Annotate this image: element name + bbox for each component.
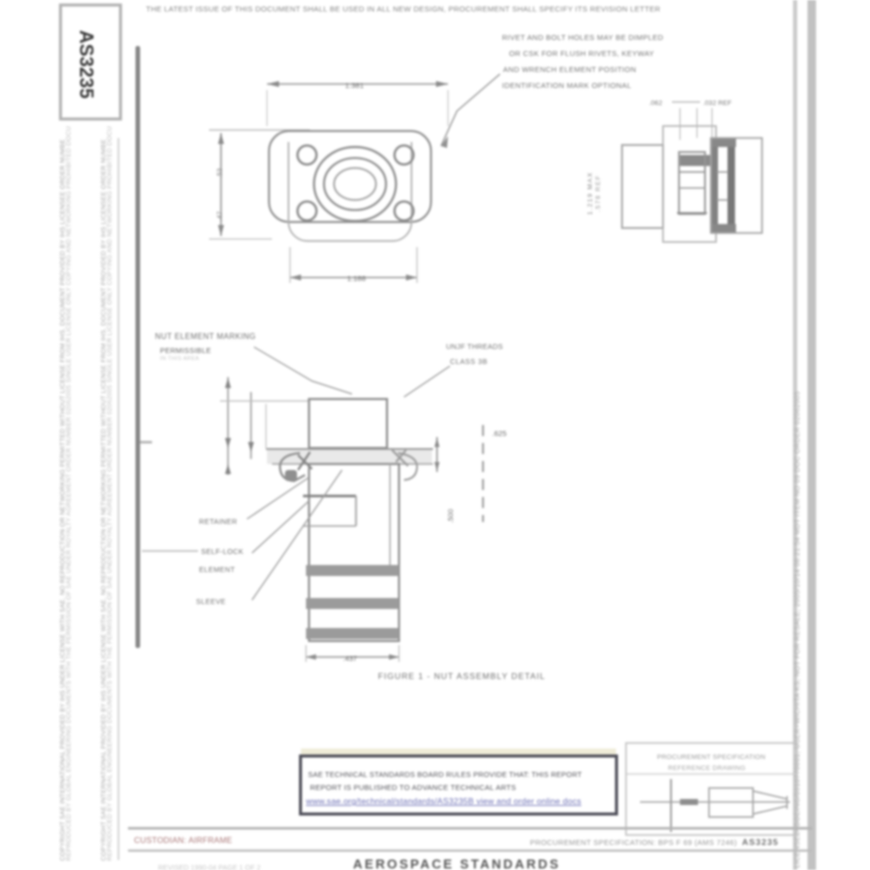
svg-text:UNJF THREADS: UNJF THREADS [446, 342, 503, 351]
svg-text:OR CSK FOR FLUSH RIVETS, KEYWA: OR CSK FOR FLUSH RIVETS, KEYWAY [509, 49, 654, 58]
svg-text:.625: .625 [492, 429, 507, 438]
svg-text:FIGURE 1 - NUT ASSEMBLY DETAIL: FIGURE 1 - NUT ASSEMBLY DETAIL [378, 671, 545, 681]
svg-text:RETAINER: RETAINER [199, 517, 237, 526]
svg-text:.032 REF: .032 REF [703, 100, 732, 107]
svg-text:CLASS 3B: CLASS 3B [450, 357, 488, 366]
svg-text:RIVET AND BOLT HOLES MAY BE DI: RIVET AND BOLT HOLES MAY BE DIMPLED [502, 33, 663, 42]
svg-text:.578 REF: .578 REF [595, 175, 602, 212]
svg-text:REVISED 1990-04 PAGE 1 OF 2: REVISED 1990-04 PAGE 1 OF 2 [158, 865, 261, 870]
svg-text:.062: .062 [649, 100, 662, 107]
svg-text:1.381: 1.381 [345, 81, 364, 90]
svg-text:1.219 MAX: 1.219 MAX [587, 172, 594, 215]
svg-text:AND WRENCH ELEMENT POSITION: AND WRENCH ELEMENT POSITION [503, 65, 636, 74]
svg-text:.53: .53 [217, 168, 224, 178]
svg-text:CUSTODIAN: AIRFRAME: CUSTODIAN: AIRFRAME [134, 836, 233, 845]
svg-text:.47: .47 [217, 211, 224, 221]
svg-text:.500: .500 [446, 509, 455, 523]
svg-text:IN THIS AREA: IN THIS AREA [160, 356, 199, 362]
svg-text:1.188: 1.188 [347, 274, 366, 283]
svg-text:ELEMENT: ELEMENT [199, 565, 235, 574]
svg-text:REPORT IS PUBLISHED TO ADVANCE: REPORT IS PUBLISHED TO ADVANCE TECHNICAL… [310, 783, 516, 792]
svg-text:REPRODUCED BY GLOBAL ENGINEERI: REPRODUCED BY GLOBAL ENGINEERING DOCUMEN… [107, 126, 114, 861]
svg-text:AS3235: AS3235 [75, 30, 96, 99]
svg-text:REFERENCE DRAWING: REFERENCE DRAWING [668, 765, 746, 772]
svg-text:PERMISSIBLE: PERMISSIBLE [160, 346, 211, 355]
svg-text:PROCUREMENT SPECIFICATION: BPS: PROCUREMENT SPECIFICATION: BPS F 69 (AMS… [530, 838, 737, 847]
svg-text:PROCUREMENT SPECIFICATION: PROCUREMENT SPECIFICATION [657, 754, 765, 761]
svg-text:IDENTIFICATION MARK OPTIONAL: IDENTIFICATION MARK OPTIONAL [502, 81, 631, 90]
svg-text:AS3235: AS3235 [742, 837, 779, 847]
svg-text:www.sae.org/technical/standard: www.sae.org/technical/standards/AS3235B … [305, 796, 581, 806]
svg-text:THE LATEST ISSUE OF THIS DOCUM: THE LATEST ISSUE OF THIS DOCUMENT SHALL … [146, 5, 661, 14]
svg-text:AEROSPACE STANDARDS: AEROSPACE STANDARDS [353, 857, 560, 870]
svg-text:LICENSEE=BOEING/5910770001, US: LICENSEE=BOEING/5910770001, USER=WICHITA… [795, 391, 802, 868]
svg-text:.437: .437 [343, 654, 357, 663]
svg-text:SAE TECHNICAL STANDARDS BOARD: SAE TECHNICAL STANDARDS BOARD RULES PROV… [308, 770, 582, 779]
svg-text:SELF-LOCK: SELF-LOCK [201, 547, 244, 556]
svg-text:SLEEVE: SLEEVE [196, 597, 226, 606]
svg-text:REPRODUCED BY GLOBAL ENGINEERI: REPRODUCED BY GLOBAL ENGINEERING DOCUMEN… [66, 126, 73, 861]
svg-text:NUT ELEMENT MARKING: NUT ELEMENT MARKING [155, 332, 256, 341]
